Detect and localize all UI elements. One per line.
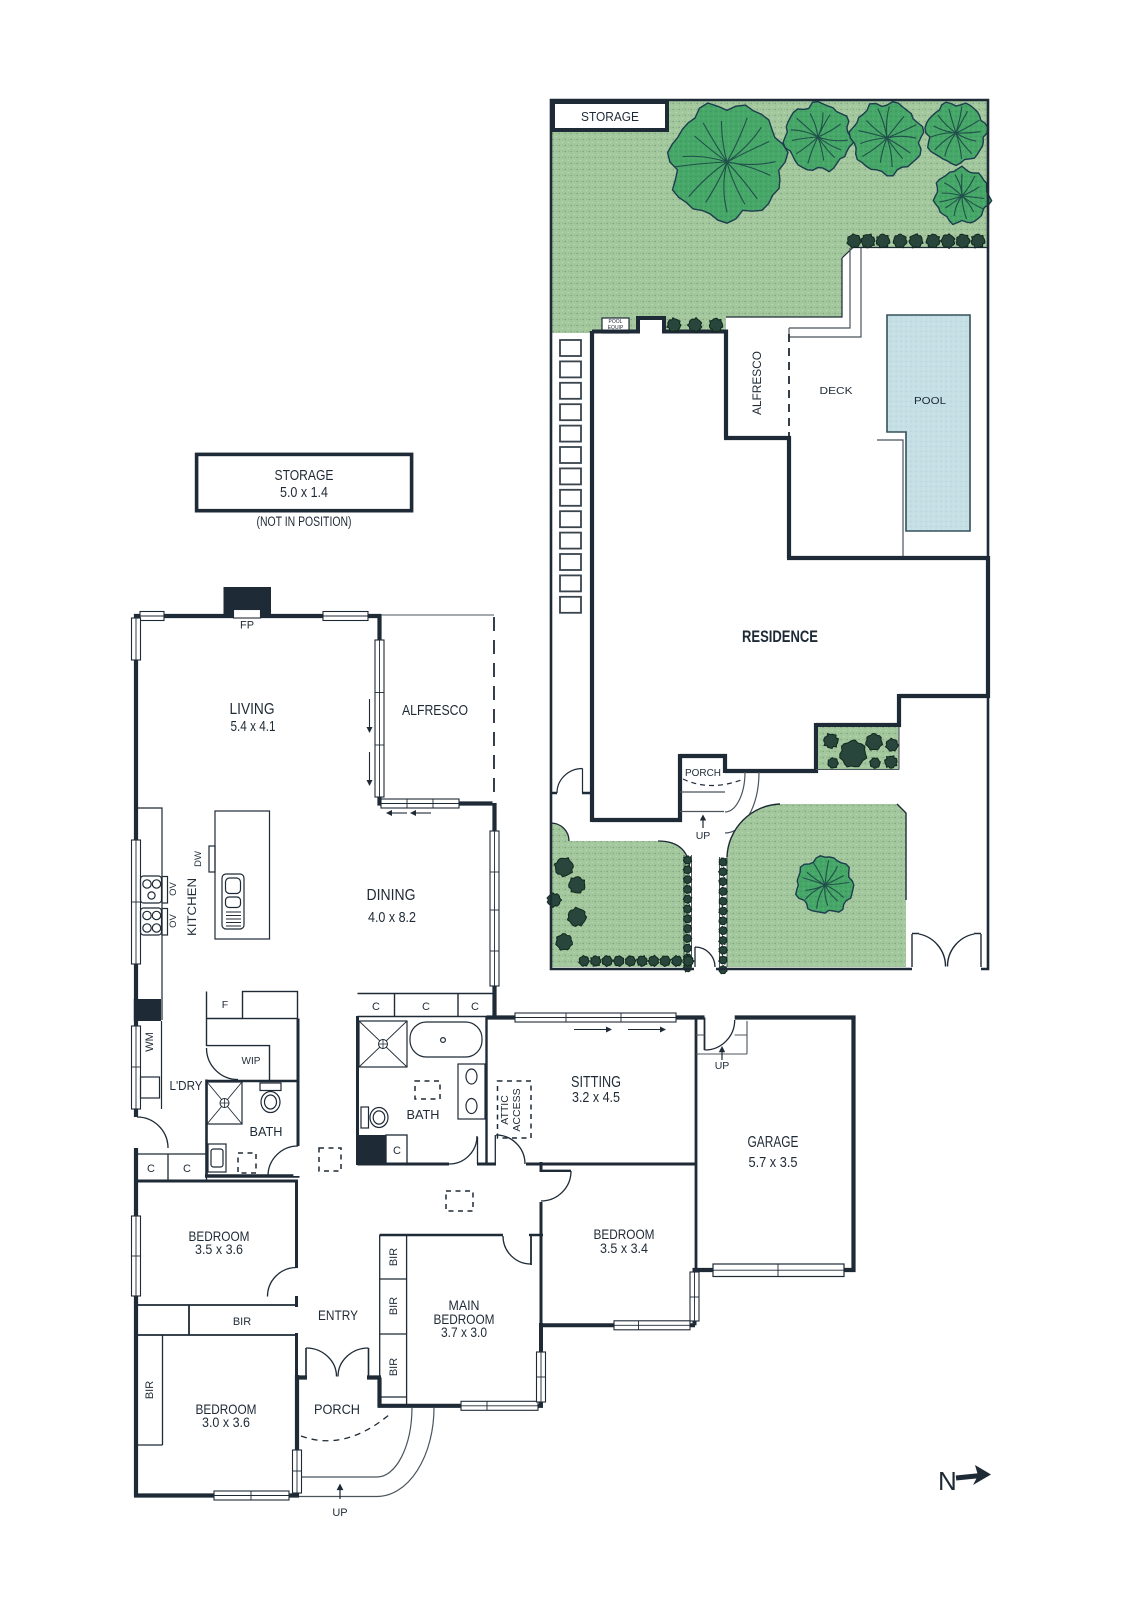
svg-text:RESIDENCE: RESIDENCE xyxy=(742,627,818,646)
svg-text:BATH: BATH xyxy=(250,1124,283,1139)
svg-text:ALFRESCO: ALFRESCO xyxy=(750,351,764,415)
svg-text:DINING: DINING xyxy=(367,887,416,904)
svg-text:5.0 x 1.4: 5.0 x 1.4 xyxy=(280,485,328,501)
svg-text:F: F xyxy=(222,999,228,1011)
svg-text:5.4 x 4.1: 5.4 x 4.1 xyxy=(231,718,276,735)
svg-text:3.5 x 3.4: 3.5 x 3.4 xyxy=(600,1241,648,1256)
svg-text:STORAGE: STORAGE xyxy=(581,109,639,124)
svg-text:BIR: BIR xyxy=(388,1297,400,1315)
svg-text:C: C xyxy=(422,1001,430,1013)
svg-text:3.7 x 3.0: 3.7 x 3.0 xyxy=(441,1325,487,1340)
svg-text:ATTIC: ATTIC xyxy=(499,1095,511,1125)
svg-text:3.5 x 3.6: 3.5 x 3.6 xyxy=(195,1242,243,1257)
svg-text:ALFRESCO: ALFRESCO xyxy=(402,703,468,719)
svg-text:UP: UP xyxy=(332,1507,347,1519)
svg-text:WIP: WIP xyxy=(242,1056,261,1067)
svg-text:L'DRY: L'DRY xyxy=(170,1078,203,1093)
svg-text:FP: FP xyxy=(240,620,254,632)
svg-text:LIVING: LIVING xyxy=(230,701,275,718)
svg-text:4.0 x 8.2: 4.0 x 8.2 xyxy=(368,909,416,926)
svg-text:ACCESS: ACCESS xyxy=(511,1088,523,1131)
svg-text:3.0 x 3.6: 3.0 x 3.6 xyxy=(202,1415,250,1430)
svg-text:POOL: POOL xyxy=(914,395,946,407)
svg-text:PORCH: PORCH xyxy=(685,767,721,779)
svg-text:OV: OV xyxy=(168,913,179,927)
svg-text:C: C xyxy=(372,1001,380,1013)
svg-text:N: N xyxy=(938,1466,957,1496)
svg-text:OV: OV xyxy=(168,881,179,895)
svg-text:(NOT IN POSITION): (NOT IN POSITION) xyxy=(257,514,352,529)
svg-text:DECK: DECK xyxy=(820,385,853,397)
svg-text:PORCH: PORCH xyxy=(314,1401,360,1417)
svg-text:UP: UP xyxy=(696,830,711,842)
svg-text:KITCHEN: KITCHEN xyxy=(185,878,199,936)
svg-text:ENTRY: ENTRY xyxy=(318,1307,359,1323)
svg-text:C: C xyxy=(147,1163,155,1175)
svg-text:BIR: BIR xyxy=(233,1316,251,1328)
svg-text:C: C xyxy=(183,1163,191,1175)
svg-text:DW: DW xyxy=(193,851,204,867)
svg-text:3.2 x 4.5: 3.2 x 4.5 xyxy=(572,1089,620,1106)
svg-text:WM: WM xyxy=(144,1032,156,1052)
svg-text:BIR: BIR xyxy=(144,1381,156,1399)
svg-text:GARAGE: GARAGE xyxy=(748,1134,799,1151)
svg-text:BEDROOM: BEDROOM xyxy=(594,1226,655,1242)
svg-text:UP: UP xyxy=(715,1060,730,1072)
svg-text:C: C xyxy=(471,1001,479,1013)
svg-text:5.7 x 3.5: 5.7 x 3.5 xyxy=(749,1154,798,1171)
svg-text:BATH: BATH xyxy=(407,1107,440,1122)
svg-text:BIR: BIR xyxy=(388,1248,400,1266)
svg-text:STORAGE: STORAGE xyxy=(275,467,334,484)
svg-text:BIR: BIR xyxy=(388,1358,400,1376)
svg-text:C: C xyxy=(393,1145,401,1157)
